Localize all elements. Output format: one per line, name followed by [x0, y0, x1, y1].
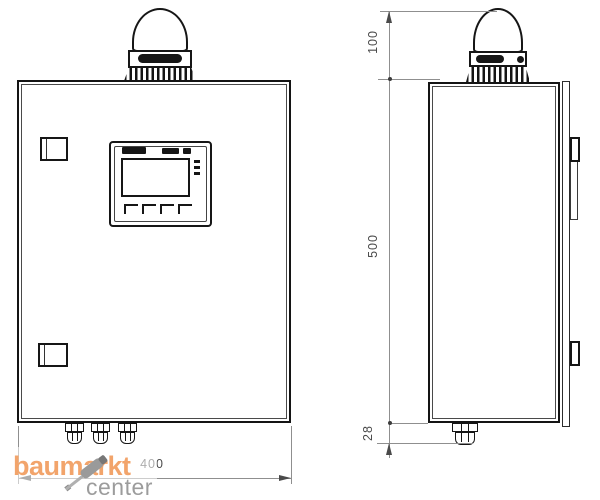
dot-cabinet-top	[388, 77, 392, 81]
dot-cabinet-bottom	[388, 421, 392, 425]
dim-cabinet-height-label: 500	[366, 234, 380, 258]
technical-drawing-canvas: 100 500 28 400 baumarkt center	[0, 0, 600, 500]
watermark-logo: baumarkt center	[0, 440, 220, 500]
watermark-suffix-text: center	[86, 474, 153, 500]
dimensioning: 100 500 28 400	[0, 0, 600, 500]
dim-beacon-height-label: 100	[366, 30, 380, 54]
ext-line-beacon-top	[380, 11, 497, 12]
arrow-width-right	[279, 475, 291, 481]
ext-line-cabinet-bottom	[390, 423, 428, 424]
dim-gland-height-label: 28	[361, 425, 375, 441]
arrow-gland-bottom	[386, 443, 392, 455]
ext-line-width-right	[291, 426, 292, 484]
arrow-beacon-top	[386, 11, 392, 23]
